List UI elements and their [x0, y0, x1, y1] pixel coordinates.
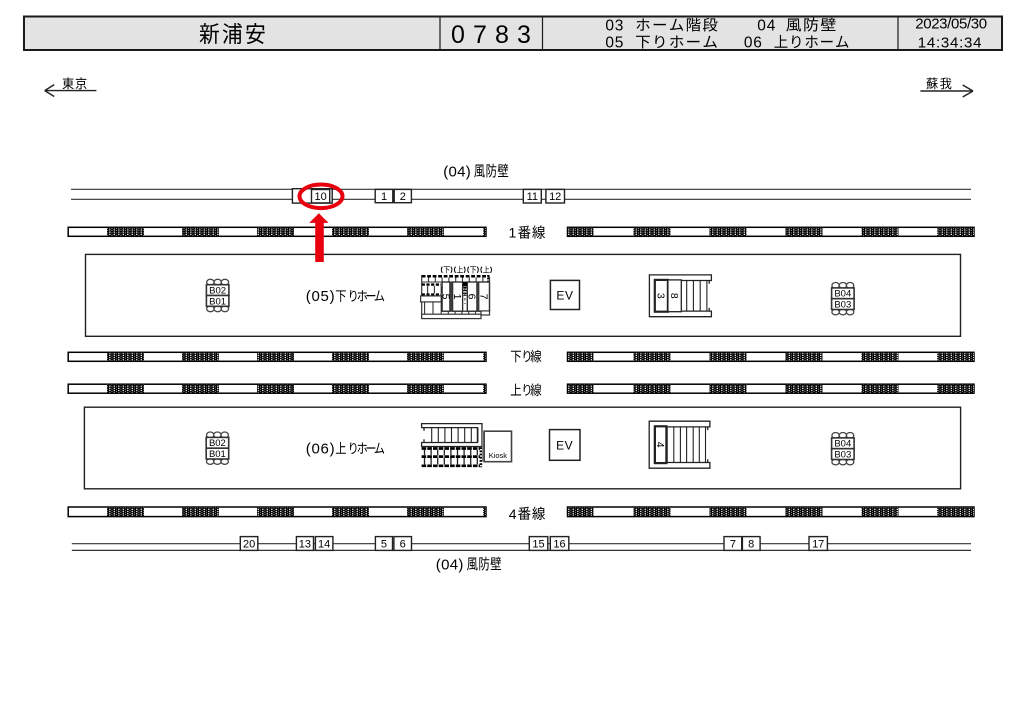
- svg-text:2023/05/30: 2023/05/30: [915, 16, 987, 33]
- svg-text:EV: EV: [556, 438, 573, 452]
- svg-text:15: 15: [532, 539, 544, 551]
- svg-text:1: 1: [509, 225, 517, 241]
- svg-text:B02: B02: [209, 438, 226, 449]
- svg-text:16: 16: [553, 539, 565, 551]
- svg-text:06: 06: [744, 34, 763, 51]
- svg-text:8: 8: [748, 539, 754, 551]
- svg-text:13: 13: [299, 539, 311, 551]
- svg-text:5: 5: [439, 294, 451, 300]
- svg-text:17: 17: [812, 539, 824, 551]
- svg-text:8: 8: [668, 293, 680, 299]
- svg-text:03: 03: [605, 17, 624, 34]
- svg-text:7: 7: [473, 21, 487, 49]
- svg-text:B03: B03: [834, 450, 851, 461]
- svg-text:1: 1: [381, 191, 387, 203]
- svg-text:B03: B03: [834, 300, 851, 311]
- svg-text:7: 7: [730, 539, 736, 551]
- svg-text:B02: B02: [209, 286, 226, 297]
- svg-text:B04: B04: [834, 439, 851, 450]
- svg-text:1: 1: [451, 294, 463, 300]
- svg-text:(05): (05): [306, 288, 335, 305]
- svg-text:20: 20: [243, 539, 255, 551]
- svg-text:05: 05: [605, 34, 624, 51]
- svg-text:8: 8: [495, 21, 509, 49]
- svg-text:5: 5: [381, 539, 387, 551]
- svg-text:11: 11: [527, 191, 538, 203]
- svg-text:B04: B04: [834, 289, 851, 300]
- svg-text:(04): (04): [436, 556, 464, 573]
- svg-text:3: 3: [655, 293, 667, 299]
- svg-text:EV: EV: [556, 288, 573, 302]
- svg-text:2: 2: [400, 191, 406, 203]
- svg-text:14: 14: [318, 539, 330, 551]
- svg-text:B01: B01: [209, 449, 226, 460]
- svg-text:0: 0: [451, 21, 465, 49]
- svg-text:4: 4: [509, 506, 517, 522]
- svg-text:14:34:34: 14:34:34: [918, 35, 982, 52]
- svg-text:3: 3: [517, 21, 531, 49]
- svg-text:12: 12: [549, 191, 561, 203]
- svg-text:7: 7: [478, 294, 490, 300]
- svg-text:(04): (04): [443, 163, 471, 180]
- svg-text:B01: B01: [209, 296, 226, 307]
- svg-text:6: 6: [400, 539, 406, 551]
- svg-text:04: 04: [757, 17, 776, 34]
- svg-text:10: 10: [314, 191, 326, 203]
- svg-text:Kiosk: Kiosk: [489, 451, 508, 460]
- svg-text:4: 4: [654, 442, 666, 448]
- svg-text:(06): (06): [306, 440, 335, 457]
